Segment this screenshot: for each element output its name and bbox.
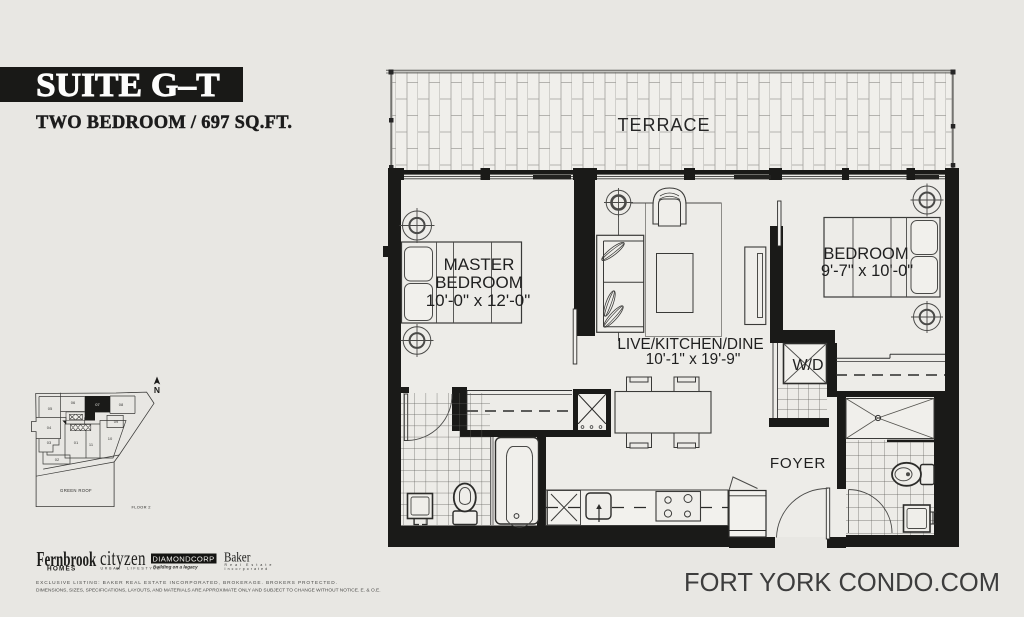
svg-text:FLOOR 2: FLOOR 2 xyxy=(132,504,152,509)
svg-text:Building on a legacy: Building on a legacy xyxy=(153,565,198,570)
svg-text:03: 03 xyxy=(47,440,52,445)
svg-text:DIMENSIONS, SIZES, SPECIFICATI: DIMENSIONS, SIZES, SPECIFICATIONS, LAYOU… xyxy=(36,588,381,594)
svg-text:FORT YORK CONDO.COM: FORT YORK CONDO.COM xyxy=(684,569,1000,597)
svg-text:04: 04 xyxy=(47,425,52,430)
svg-text:10: 10 xyxy=(108,436,113,441)
svg-text:01: 01 xyxy=(74,440,79,445)
svg-text:9'-7" x 10'-0": 9'-7" x 10'-0" xyxy=(821,262,913,280)
svg-text:06: 06 xyxy=(71,400,76,405)
svg-text:10'-1" x 19'-9": 10'-1" x 19'-9" xyxy=(646,351,741,368)
svg-text:10'-0" x 12'-0": 10'-0" x 12'-0" xyxy=(426,291,531,310)
svg-text:07: 07 xyxy=(95,402,100,407)
svg-text:BEDROOM: BEDROOM xyxy=(435,273,523,292)
svg-text:EXCLUSIVE LISTING: BAKER REAL: EXCLUSIVE LISTING: BAKER REAL ESTATE INC… xyxy=(36,580,338,586)
svg-text:08: 08 xyxy=(119,402,124,407)
svg-text:TWO BEDROOM / 697 SQ.FT.: TWO BEDROOM / 697 SQ.FT. xyxy=(36,112,292,133)
svg-text:W/D: W/D xyxy=(792,357,823,374)
svg-text:TERRACE: TERRACE xyxy=(617,115,710,135)
svg-text:09: 09 xyxy=(114,419,119,424)
svg-text:02: 02 xyxy=(55,457,60,462)
svg-text:N: N xyxy=(154,385,160,395)
svg-text:HOMES: HOMES xyxy=(47,566,76,573)
svg-text:SUITE G–T: SUITE G–T xyxy=(36,66,220,104)
svg-text:FOYER: FOYER xyxy=(770,455,826,472)
svg-text:BEDROOM: BEDROOM xyxy=(823,245,908,263)
svg-text:MASTER: MASTER xyxy=(444,255,515,274)
svg-text:DIAMONDCORP: DIAMONDCORP xyxy=(152,555,214,564)
svg-text:GREEN ROOF: GREEN ROOF xyxy=(60,488,92,493)
svg-text:I n c o r p o r a t e d: I n c o r p o r a t e d xyxy=(225,567,268,571)
svg-text:11: 11 xyxy=(89,442,94,447)
svg-text:05: 05 xyxy=(48,406,53,411)
